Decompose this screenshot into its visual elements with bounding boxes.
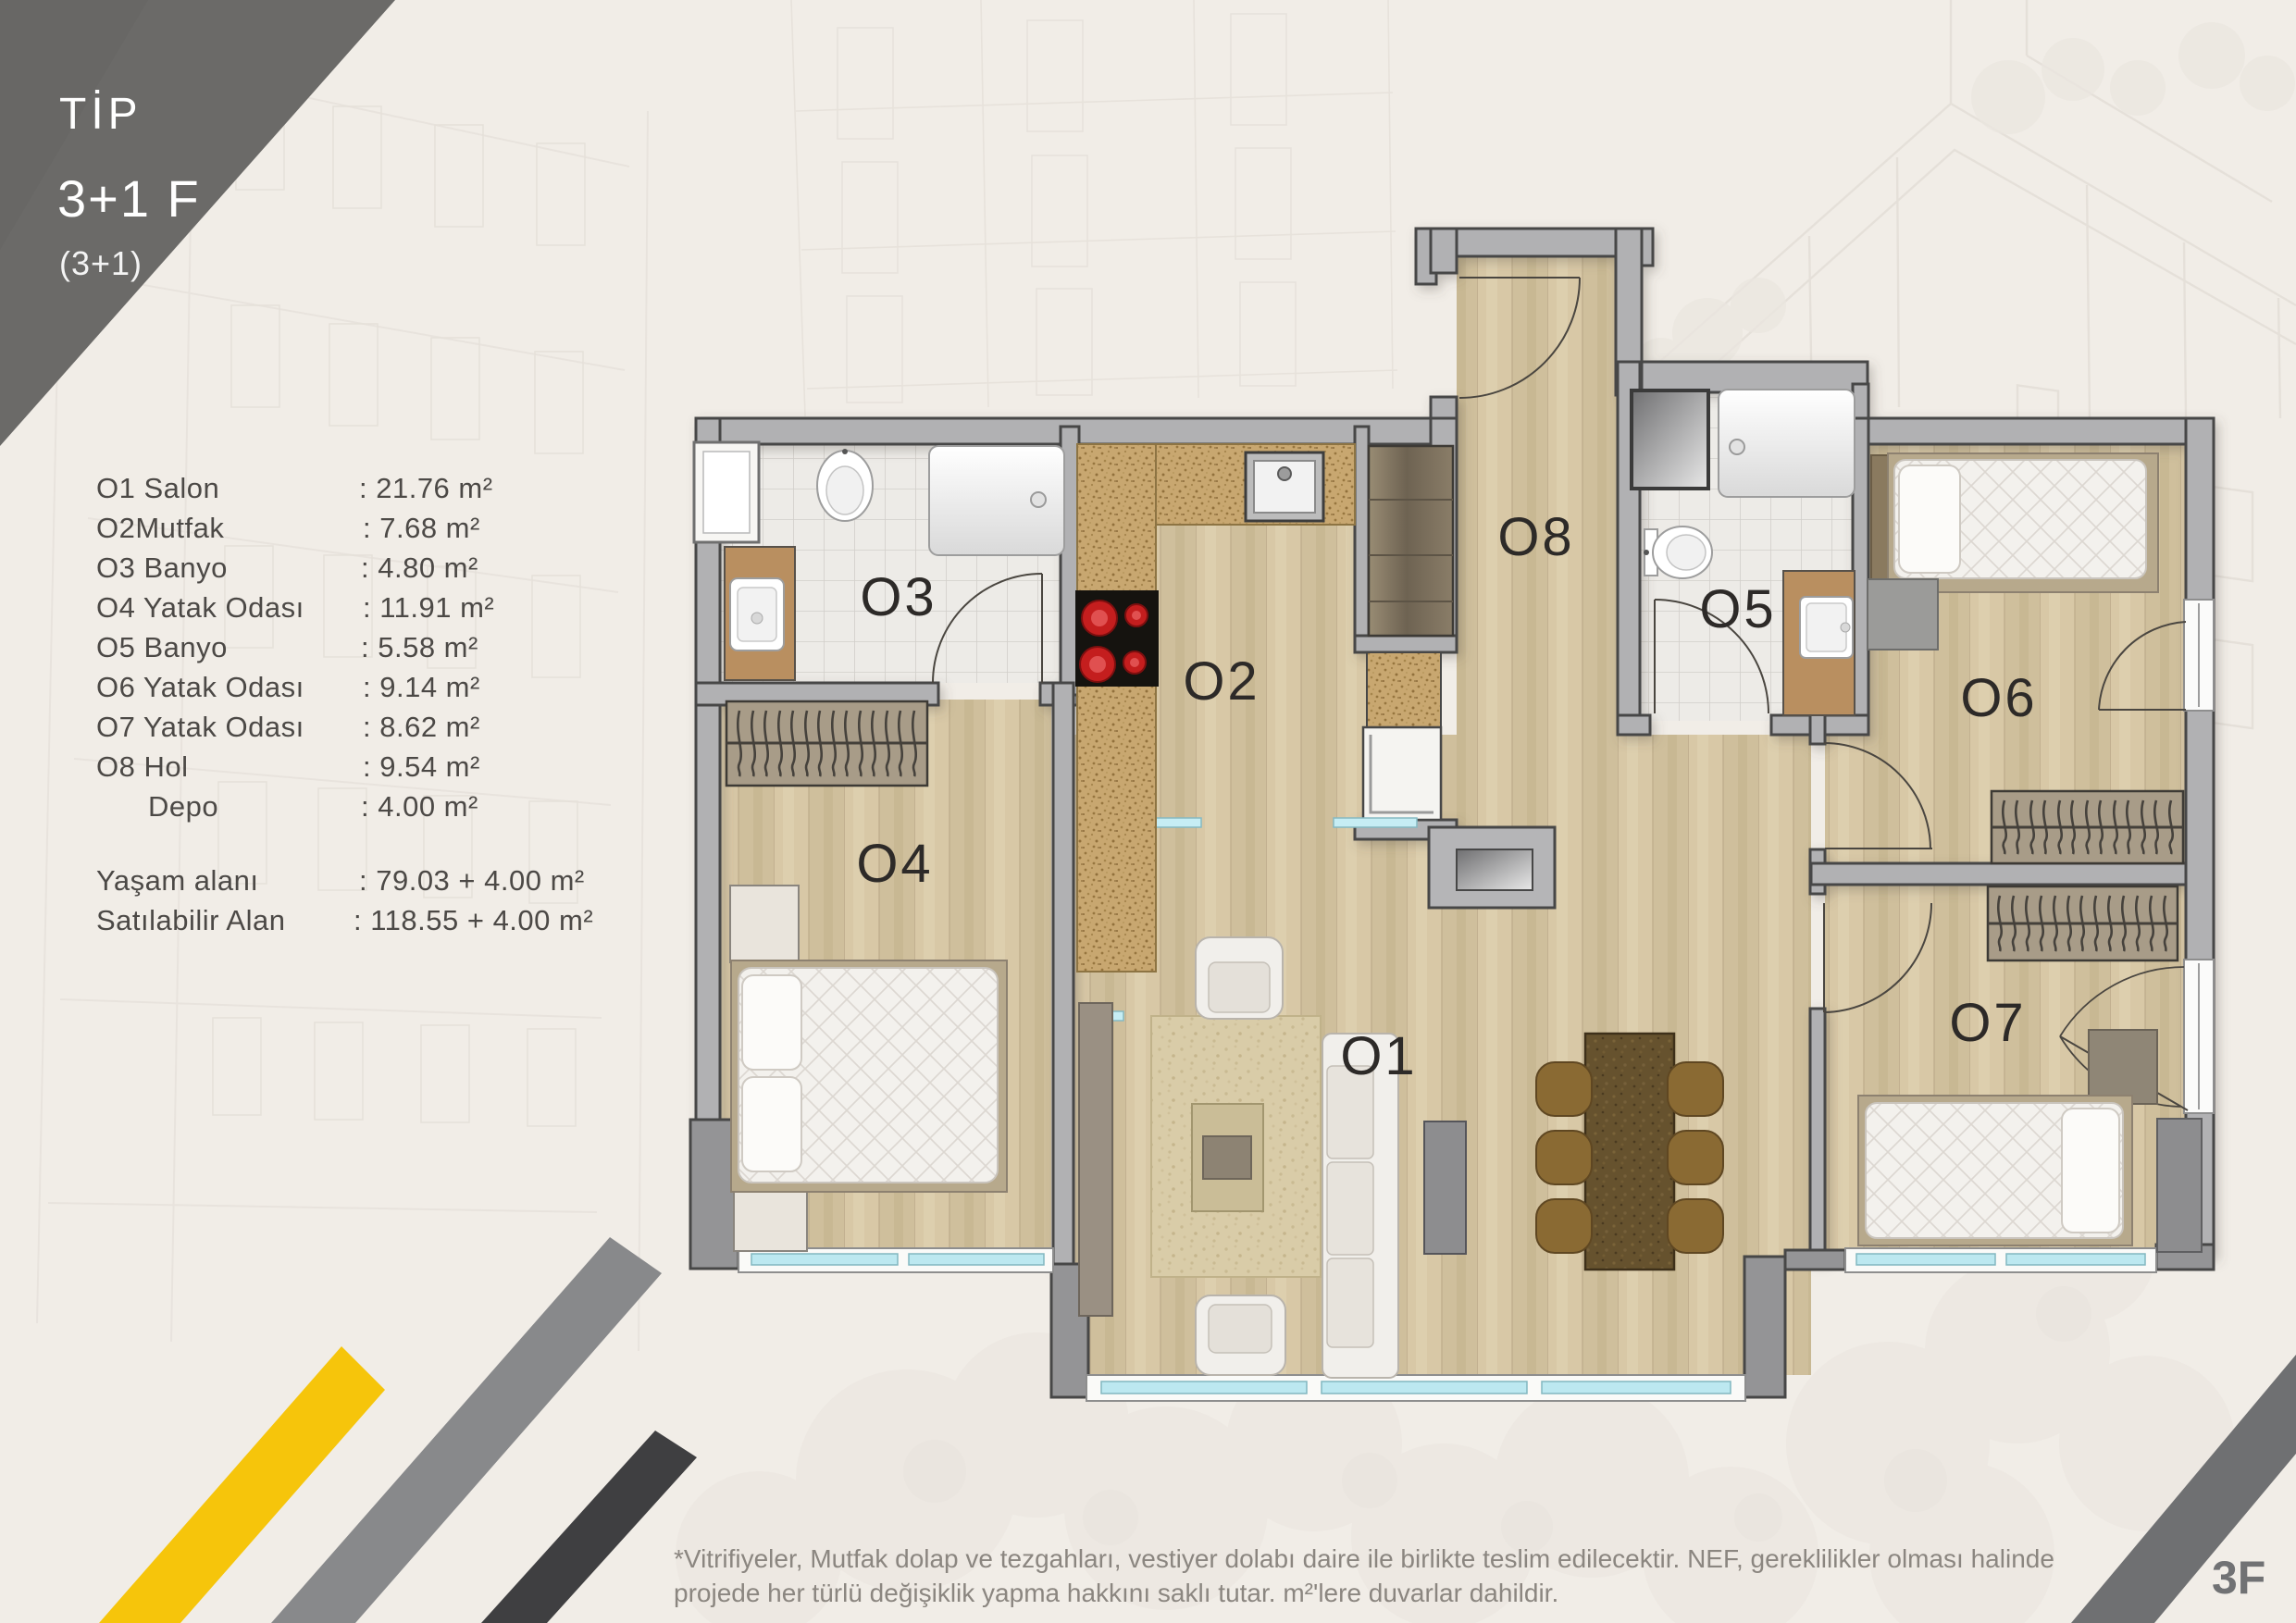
svg-text:: 5.58 m²: : 5.58 m² xyxy=(361,631,478,663)
svg-text:O7 Yatak Odası: O7 Yatak Odası xyxy=(96,711,304,743)
svg-text:: 7.68 m²: : 7.68 m² xyxy=(363,512,480,544)
svg-text:O6 Yatak Odası: O6 Yatak Odası xyxy=(96,671,304,703)
svg-text:: 4.80 m²: : 4.80 m² xyxy=(361,551,478,584)
svg-text:Depo: Depo xyxy=(148,790,218,823)
svg-text:*Vitrifiyeler, Mutfak dolap ve: *Vitrifiyeler, Mutfak dolap ve tezgahlar… xyxy=(674,1544,2054,1573)
svg-text:projede her türlü değişiklik y: projede her türlü değişiklik yapma hakkı… xyxy=(674,1579,1558,1607)
svg-text:O8: O8 xyxy=(1497,507,1574,567)
svg-text:O8 Hol: O8 Hol xyxy=(96,750,188,783)
svg-text:: 4.00 m²: : 4.00 m² xyxy=(361,790,478,823)
svg-text:Satılabilir Alan: Satılabilir Alan xyxy=(96,904,285,936)
svg-text:TİP: TİP xyxy=(59,90,143,139)
svg-text:O4: O4 xyxy=(856,834,933,894)
svg-text:O2: O2 xyxy=(1183,651,1260,712)
svg-text:O6: O6 xyxy=(1960,668,2037,728)
svg-text:: 11.91 m²: : 11.91 m² xyxy=(363,591,494,624)
svg-text:O5 Banyo: O5 Banyo xyxy=(96,631,228,663)
svg-text:: 21.76 m²: : 21.76 m² xyxy=(359,472,493,504)
svg-text:: 118.55 + 4.00 m²: : 118.55 + 4.00 m² xyxy=(354,904,593,936)
svg-text:: 8.62 m²: : 8.62 m² xyxy=(363,711,480,743)
svg-text:3F: 3F xyxy=(2212,1552,2265,1604)
svg-text:O7: O7 xyxy=(1949,993,2026,1053)
svg-text:O3: O3 xyxy=(860,567,937,627)
svg-text:O4 Yatak Odası: O4 Yatak Odası xyxy=(96,591,304,624)
svg-text:: 79.03 + 4.00 m²: : 79.03 + 4.00 m² xyxy=(359,864,585,897)
svg-text:3+1 F: 3+1 F xyxy=(57,169,201,228)
svg-text:O1: O1 xyxy=(1340,1026,1417,1086)
svg-text:O3 Banyo: O3 Banyo xyxy=(96,551,228,584)
svg-text:Yaşam alanı: Yaşam alanı xyxy=(96,864,259,897)
svg-text:O1 Salon: O1 Salon xyxy=(96,472,219,504)
svg-text:O2Mutfak: O2Mutfak xyxy=(96,512,224,544)
svg-text:: 9.14 m²: : 9.14 m² xyxy=(363,671,480,703)
svg-text:(3+1): (3+1) xyxy=(59,244,143,282)
svg-text:O5: O5 xyxy=(1699,579,1776,639)
svg-text:: 9.54 m²: : 9.54 m² xyxy=(363,750,480,783)
